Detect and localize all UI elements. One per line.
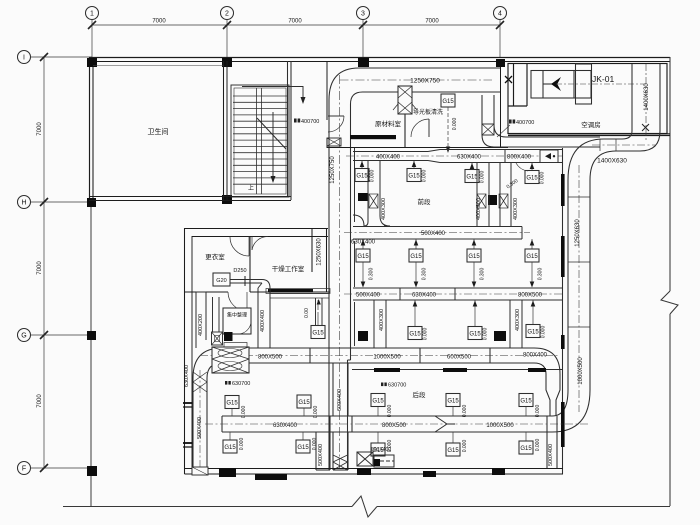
svg-text:400700: 400700 — [301, 119, 319, 125]
svg-text:800X500: 800X500 — [518, 293, 543, 299]
svg-text:600X400: 600X400 — [371, 447, 391, 453]
svg-text:630X400: 630X400 — [412, 293, 437, 299]
svg-text:7000: 7000 — [37, 122, 43, 136]
svg-text:800X400: 800X400 — [507, 155, 532, 161]
svg-text:JK-01: JK-01 — [592, 74, 614, 84]
svg-text:F: F — [22, 466, 26, 473]
svg-text:3: 3 — [361, 11, 365, 18]
svg-text:7000: 7000 — [425, 19, 439, 25]
svg-text:0.000: 0.000 — [541, 326, 547, 339]
svg-text:0.000: 0.000 — [423, 328, 429, 341]
svg-text:630X400: 630X400 — [457, 155, 482, 161]
svg-text:500X400: 500X400 — [421, 231, 446, 237]
svg-text:630700: 630700 — [388, 383, 406, 389]
svg-text:800X500: 800X500 — [258, 355, 283, 361]
svg-text:0.000: 0.000 — [239, 438, 245, 451]
svg-text:0.300: 0.300 — [422, 268, 428, 281]
svg-text:2: 2 — [225, 11, 229, 18]
svg-text:0.000: 0.000 — [422, 170, 428, 183]
svg-text:630X400: 630X400 — [273, 423, 298, 429]
svg-text:0.300: 0.300 — [538, 268, 544, 281]
svg-text:导光板清洗: 导光板清洗 — [413, 108, 443, 116]
svg-text:1250X750: 1250X750 — [410, 78, 440, 85]
svg-text:上: 上 — [248, 184, 254, 192]
svg-text:630700: 630700 — [232, 381, 250, 387]
svg-text:G: G — [21, 333, 26, 340]
svg-text:500X400: 500X400 — [197, 417, 203, 439]
svg-text:0.000: 0.000 — [462, 440, 468, 453]
svg-text:集中整理: 集中整理 — [227, 312, 247, 319]
svg-text:400X200: 400X200 — [198, 314, 204, 336]
svg-text:400X300: 400X300 — [513, 198, 519, 220]
svg-text:500X400: 500X400 — [356, 293, 381, 299]
svg-text:800X400: 800X400 — [523, 353, 548, 359]
svg-text:630X400: 630X400 — [184, 365, 190, 387]
svg-text:1400X630: 1400X630 — [644, 83, 650, 111]
svg-text:更衣室: 更衣室 — [205, 252, 225, 261]
svg-text:0.000: 0.000 — [370, 170, 376, 183]
svg-text:400700: 400700 — [516, 120, 534, 126]
svg-text:G20: G20 — [216, 278, 226, 284]
svg-text:后段: 后段 — [413, 390, 427, 399]
svg-text:0.000: 0.000 — [480, 171, 486, 184]
svg-text:卫生间: 卫生间 — [148, 127, 169, 136]
svg-text:800X500: 800X500 — [382, 423, 407, 429]
svg-text:400X300: 400X300 — [515, 309, 521, 331]
svg-text:0.000: 0.000 — [535, 405, 541, 418]
svg-text:H: H — [21, 200, 26, 207]
svg-text:0.000: 0.000 — [452, 118, 458, 131]
svg-text:400X300: 400X300 — [381, 198, 387, 220]
svg-text:0.000: 0.000 — [483, 328, 489, 341]
svg-text:D250: D250 — [233, 268, 246, 274]
svg-text:600X500: 600X500 — [447, 355, 472, 361]
svg-text:1: 1 — [90, 11, 94, 18]
svg-text:400X300: 400X300 — [379, 309, 385, 331]
svg-text:500X400: 500X400 — [318, 444, 324, 466]
svg-text:600X400: 600X400 — [337, 389, 343, 411]
svg-text:0.000: 0.000 — [387, 405, 393, 418]
svg-text:干燥工作室: 干燥工作室 — [272, 264, 305, 273]
svg-text:1400X630: 1400X630 — [597, 158, 627, 165]
svg-text:1000X500: 1000X500 — [486, 423, 514, 429]
svg-text:原材料室: 原材料室 — [375, 119, 402, 128]
svg-text:7000: 7000 — [152, 19, 166, 25]
svg-text:7000: 7000 — [37, 394, 43, 408]
svg-text:0.000: 0.000 — [535, 439, 541, 452]
svg-text:前段: 前段 — [418, 197, 432, 206]
svg-text:0.00: 0.00 — [304, 308, 310, 318]
svg-text:I: I — [23, 55, 25, 62]
svg-text:0.000: 0.000 — [313, 406, 319, 419]
svg-text:7000: 7000 — [37, 261, 43, 275]
svg-text:500X400: 500X400 — [548, 444, 554, 466]
svg-text:0.000: 0.000 — [241, 406, 247, 419]
svg-text:0.300: 0.300 — [369, 268, 375, 281]
svg-text:0.300: 0.300 — [480, 268, 486, 281]
svg-text:1250X750: 1250X750 — [330, 156, 336, 184]
svg-text:4: 4 — [498, 11, 502, 18]
svg-text:1000X500: 1000X500 — [373, 355, 401, 361]
svg-text:0.000: 0.000 — [462, 405, 468, 418]
svg-text:7000: 7000 — [288, 19, 302, 25]
svg-text:空调房: 空调房 — [581, 120, 601, 129]
svg-text:400X400: 400X400 — [260, 310, 266, 332]
svg-text:1250X630: 1250X630 — [575, 219, 581, 247]
svg-text:1250X630: 1250X630 — [317, 238, 323, 266]
svg-text:400X400: 400X400 — [376, 155, 401, 161]
svg-text:0.000: 0.000 — [540, 172, 546, 185]
